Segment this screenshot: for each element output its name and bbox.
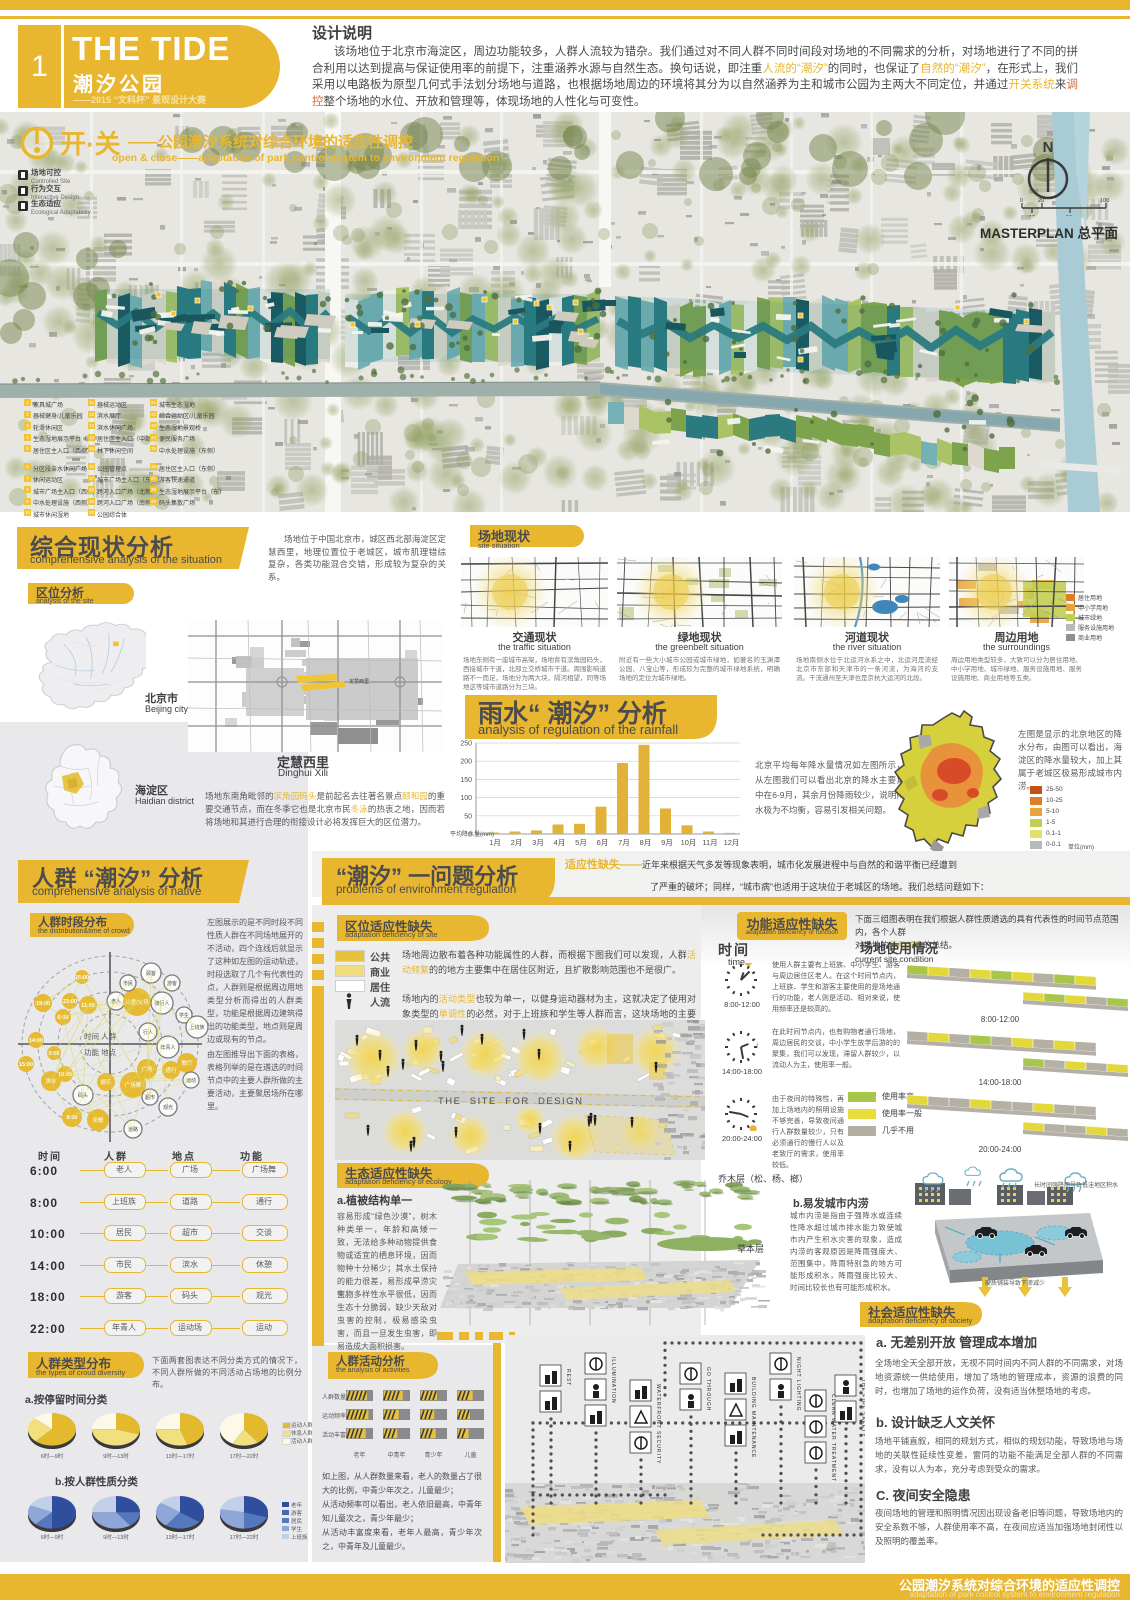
svg-text:7月: 7月 <box>618 838 630 847</box>
svg-text:50: 50 <box>464 813 472 820</box>
svg-text:0: 0 <box>1020 198 1023 204</box>
svg-text:3月: 3月 <box>532 838 544 847</box>
svg-text:100: 100 <box>1100 198 1109 204</box>
svg-text:12月: 12月 <box>724 838 740 847</box>
svg-text:9:00: 9:00 <box>48 1051 59 1057</box>
svg-text:时间 人群: 时间 人群 <box>84 1031 117 1041</box>
svg-text:用餐: 用餐 <box>92 1116 104 1124</box>
svg-text:上班族: 上班族 <box>189 1024 204 1031</box>
svg-text:REST: REST <box>565 1369 571 1386</box>
svg-text:1月: 1月 <box>489 838 501 847</box>
svg-text:10: 10 <box>1029 215 1035 216</box>
svg-text:功能 地点: 功能 地点 <box>84 1047 117 1057</box>
svg-text:50: 50 <box>1066 215 1072 216</box>
svg-text:BUILDING MAINTENANCE: BUILDING MAINTENANCE <box>750 1377 756 1458</box>
svg-text:9月: 9月 <box>661 838 673 847</box>
svg-text:250: 250 <box>460 741 472 748</box>
svg-text:GO THROUGH: GO THROUGH <box>705 1367 711 1411</box>
svg-text:5月: 5月 <box>575 838 587 847</box>
svg-text:THE FIRE SAFETY: THE FIRE SAFETY <box>860 1379 865 1438</box>
svg-text:NIGHT LIGHTING: NIGHT LIGHTING <box>795 1357 801 1411</box>
svg-text:6月: 6月 <box>597 838 609 847</box>
svg-text:N: N <box>1043 139 1054 156</box>
svg-text:8月: 8月 <box>640 838 652 847</box>
svg-text:20: 20 <box>1038 198 1044 204</box>
svg-text:15:00: 15:00 <box>19 1062 33 1068</box>
svg-text:2月: 2月 <box>511 838 523 847</box>
svg-text:14:00: 14:00 <box>29 1038 43 1044</box>
svg-text:100: 100 <box>460 795 472 802</box>
svg-text:歌厅: 歌厅 <box>181 1059 193 1067</box>
svg-text:200: 200 <box>460 759 472 766</box>
svg-text:年青人: 年青人 <box>160 1044 175 1051</box>
svg-text:11月: 11月 <box>702 838 717 847</box>
svg-text:10月: 10月 <box>681 838 697 847</box>
svg-text:ILLUMINATION: ILLUMINATION <box>610 1357 616 1404</box>
svg-text:THE SITE FOR DESIGN: THE SITE FOR DESIGN <box>438 1096 583 1107</box>
svg-text:运动: 运动 <box>186 1077 196 1084</box>
svg-text:定慧西里: 定慧西里 <box>349 678 369 685</box>
svg-text:WATERFRONT SECURITY: WATERFRONT SECURITY <box>655 1384 661 1464</box>
svg-text:道路: 道路 <box>128 1126 138 1133</box>
svg-text:4月: 4月 <box>554 838 566 847</box>
svg-text:150: 150 <box>460 777 472 784</box>
svg-text:平均降水量(mm): 平均降水量(mm) <box>450 830 494 838</box>
